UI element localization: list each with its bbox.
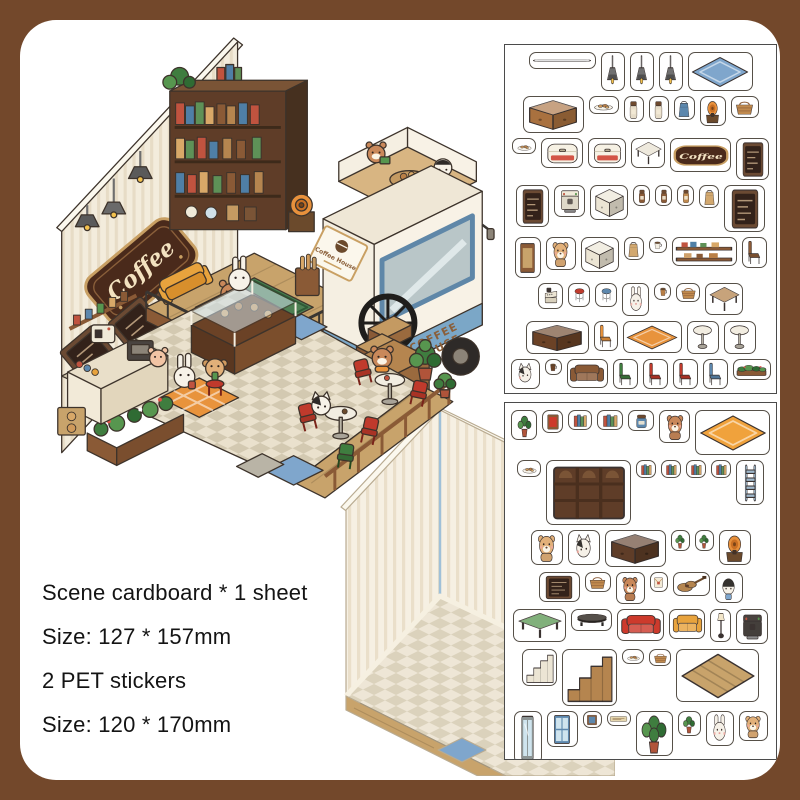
- sticker-book-row: [597, 410, 623, 430]
- sticker-plant-pot: [671, 530, 690, 551]
- sticker-bench-sofa: [567, 359, 608, 388]
- sticker-big-menu-board: [724, 185, 765, 232]
- gramophone: [289, 194, 315, 231]
- sticker-pendant-lamp: [659, 52, 683, 91]
- sticker-floor-lamp: [710, 609, 731, 642]
- sticker-hanging-plant: [511, 410, 537, 440]
- sticker-book-stack: [568, 410, 592, 430]
- sticker-coffee-sign: Coffee: [670, 138, 731, 172]
- pet-sticker-sheet-2: [504, 402, 777, 760]
- sticker-green-chair: [613, 359, 638, 389]
- sticker-orange-chair: [594, 321, 618, 351]
- sticker-penguin-with-drink: [715, 572, 743, 603]
- bookshelf: [163, 65, 314, 232]
- sticker-red-stool: [568, 283, 590, 307]
- sticker-menu-board: [516, 185, 549, 227]
- sticker-snack-basket: [585, 572, 611, 592]
- sticker-guitar: [673, 572, 710, 596]
- sticker-rabbit-with-ice-cream: [706, 711, 734, 746]
- sticker-croissant-basket: [649, 649, 671, 666]
- sticker-blue-stool: [595, 283, 617, 307]
- sticker-cat-with-cap: [568, 530, 600, 565]
- sticker-teacup: [649, 237, 667, 253]
- sticker-snack-plate: [517, 460, 541, 477]
- spec-line-sticker-count: 2 PET stickers: [42, 668, 308, 694]
- sticker-mini-books: [711, 460, 731, 478]
- sticker-flower-planter: [733, 359, 771, 380]
- sticker-red-sofa: [617, 609, 664, 641]
- product-description: Scene cardboard * 1 sheet Size: 127 * 15…: [42, 580, 308, 756]
- spec-line-sticker-size: Size: 120 * 170mm: [42, 712, 308, 738]
- sticker-coffee-jar: [633, 185, 650, 206]
- sticker-bookcase: [546, 460, 631, 525]
- spec-line-scene-cardboard: Scene cardboard * 1 sheet: [42, 580, 308, 606]
- sticker-cat-with-beret: [511, 359, 540, 389]
- sticker-bear-with-cup: [616, 572, 645, 604]
- sticker-orange-plaid-rug: [623, 321, 682, 353]
- sticker-wood-counter: [523, 96, 584, 133]
- sticker-round-table: [724, 321, 756, 354]
- sticker-blue-pouch: [674, 96, 695, 120]
- sticker-bear-jar: [624, 96, 644, 122]
- sticker-service-counter: [526, 321, 589, 354]
- sticker-bread-box: [588, 138, 626, 168]
- sticker-snack-jar: [677, 185, 694, 206]
- sticker-coffee-grinder: [700, 96, 726, 126]
- sticker-cabinet-door: [515, 237, 541, 278]
- sticker-coffee-cup: [545, 359, 562, 375]
- sticker-bear-with-tray: [546, 237, 576, 270]
- pink-bear: [148, 348, 168, 367]
- sticker-orange-plaid-rug: [695, 410, 770, 455]
- product-panel: Coffee: [20, 20, 780, 780]
- sticker-blue-chair: [703, 359, 728, 389]
- sticker-donut-plate: [589, 96, 619, 114]
- product-image: Coffee: [0, 0, 800, 800]
- sticker-tv-sideboard: [605, 530, 666, 567]
- sticker-cookie-plate: [512, 138, 536, 154]
- sticker-wall-shelf: [672, 237, 737, 266]
- svg-text:Coffee: Coffee: [679, 152, 723, 161]
- baguette-rack: [296, 254, 320, 295]
- sticker-metal-rod: [529, 52, 596, 69]
- coffee-house-scene: Coffee: [44, 32, 496, 499]
- spec-line-scene-size: Size: 127 * 157mm: [42, 624, 308, 650]
- sticker-espresso-machine: [736, 609, 768, 644]
- sticker-mini-books: [661, 460, 681, 478]
- sticker-bread-tray: [622, 649, 644, 664]
- sticker-small-frame: [583, 711, 602, 728]
- sticker-gramophone: [719, 530, 751, 565]
- sticker-paper-bag: [624, 237, 644, 260]
- sticker-menu-board: [736, 138, 769, 180]
- sticker-step-stairs: [522, 649, 557, 686]
- sticker-picture-frame: [542, 410, 563, 433]
- sticker-staircase: [562, 649, 617, 706]
- sticker-coffee-table: [571, 609, 612, 631]
- truck-wheel: [442, 338, 479, 375]
- sticker-bread-basket: [731, 96, 759, 118]
- sticker-mini-books: [636, 460, 656, 478]
- sticker-display-case: [541, 138, 583, 168]
- sticker-paper-bag: [699, 185, 719, 208]
- sticker-coffee-machine: [554, 185, 585, 217]
- sticker-plant-pot: [695, 530, 714, 551]
- sticker-drawer-cabinet: [590, 185, 628, 220]
- sticker-shop-sign: [607, 711, 631, 726]
- sticker-side-table: [631, 138, 665, 168]
- sticker-red-chair: [643, 359, 668, 389]
- pet-sticker-sheet-1: Coffee: [504, 44, 777, 394]
- sticker-takeaway-cup: [654, 283, 671, 300]
- sticker-plant-red-pot: [678, 711, 701, 736]
- sticker-green-table: [513, 609, 566, 642]
- sticker-storage-box: [628, 410, 654, 431]
- sticker-potted-tree: [636, 711, 673, 756]
- sticker-square-table: [705, 283, 743, 315]
- donut-rack: [58, 407, 86, 435]
- sticker-glass-door: [514, 711, 542, 760]
- sticker-ladder: [736, 460, 764, 505]
- sticker-mini-books: [686, 460, 706, 478]
- sticker-pendant-lamp: [601, 52, 625, 91]
- sticker-round-table: [687, 321, 719, 354]
- sticker-pendant-lamp: [630, 52, 654, 91]
- sticker-bear-jar: [649, 96, 669, 122]
- sticker-red-chair: [673, 359, 698, 389]
- sticker-picnic-basket: [676, 283, 700, 302]
- sticker-wood-floor: [676, 649, 759, 702]
- sticker-koala-with-cookie: [739, 711, 768, 741]
- sticker-coffee-jar: [655, 185, 672, 206]
- sticker-bear-reading: [659, 410, 690, 443]
- sticker-blue-checkered-rug: [688, 52, 753, 91]
- sticker-cafe-sign-board: [539, 572, 580, 602]
- sticker-yellow-armchair: [669, 609, 705, 639]
- sticker-bunny-with-cocoa: [622, 283, 649, 316]
- sticker-cafe-chair: [742, 237, 767, 268]
- sticker-blue-window: [547, 711, 578, 747]
- sticker-letter: [650, 572, 668, 592]
- sticker-bear-plush: [531, 530, 563, 565]
- sticker-register: [538, 283, 563, 309]
- sticker-drawer-cabinet: [581, 237, 619, 272]
